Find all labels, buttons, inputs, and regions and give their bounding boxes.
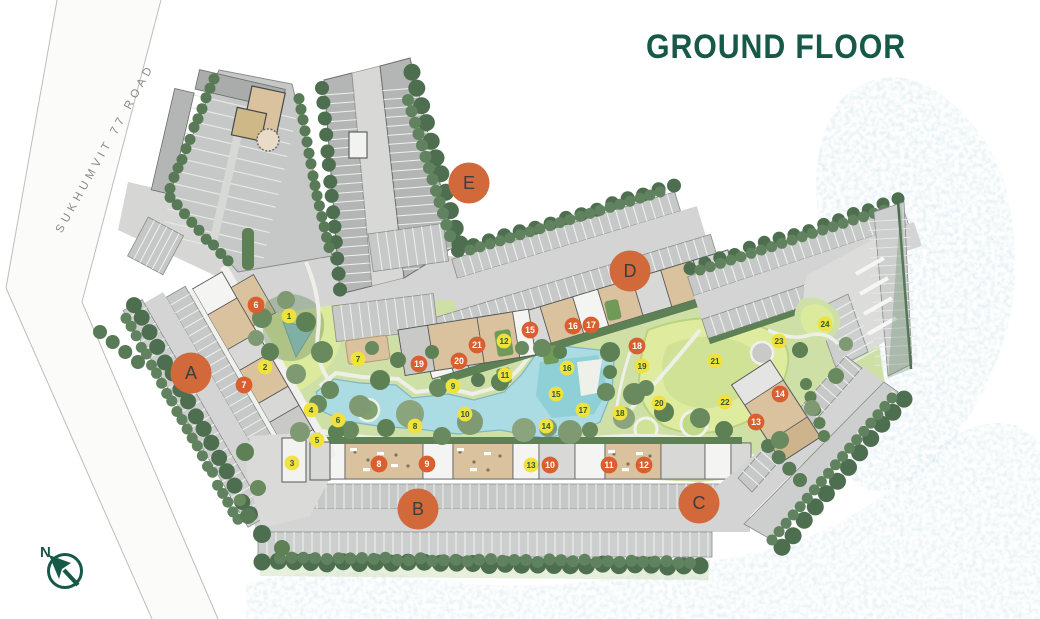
svg-text:11: 11 (501, 371, 510, 380)
svg-text:5: 5 (315, 436, 320, 445)
svg-text:24: 24 (820, 320, 830, 329)
svg-text:2: 2 (263, 363, 268, 372)
svg-text:N: N (40, 544, 51, 561)
svg-text:15: 15 (525, 325, 535, 335)
svg-text:23: 23 (774, 337, 784, 346)
svg-text:12: 12 (639, 460, 649, 470)
svg-text:16: 16 (562, 364, 572, 373)
svg-text:13: 13 (751, 417, 761, 427)
svg-text:D: D (624, 261, 637, 281)
svg-text:B: B (412, 499, 424, 519)
svg-text:4: 4 (309, 406, 314, 415)
svg-text:18: 18 (615, 409, 625, 418)
svg-text:22: 22 (720, 398, 730, 407)
svg-text:19: 19 (414, 359, 424, 369)
svg-text:14: 14 (775, 389, 785, 399)
svg-text:15: 15 (551, 390, 561, 399)
svg-text:A: A (185, 363, 197, 383)
svg-text:7: 7 (242, 380, 247, 390)
svg-text:21: 21 (472, 340, 482, 350)
svg-text:GROUND FLOOR: GROUND FLOOR (646, 28, 906, 66)
svg-text:18: 18 (632, 341, 642, 351)
svg-text:8: 8 (413, 422, 418, 431)
svg-text:E: E (463, 173, 475, 193)
svg-text:10: 10 (545, 460, 555, 470)
svg-text:17: 17 (586, 320, 596, 330)
svg-text:9: 9 (451, 382, 456, 391)
svg-text:20: 20 (654, 399, 664, 408)
svg-text:12: 12 (499, 337, 509, 346)
svg-text:C: C (693, 493, 706, 513)
svg-text:6: 6 (254, 300, 259, 310)
svg-text:3: 3 (290, 459, 295, 468)
svg-text:20: 20 (454, 356, 464, 366)
svg-text:21: 21 (710, 357, 720, 366)
svg-text:19: 19 (637, 362, 647, 371)
svg-text:14: 14 (541, 422, 551, 431)
svg-text:7: 7 (356, 355, 361, 364)
svg-text:17: 17 (578, 406, 588, 415)
svg-text:1: 1 (287, 312, 292, 321)
svg-text:10: 10 (460, 410, 470, 419)
svg-text:9: 9 (425, 459, 430, 469)
svg-text:8: 8 (377, 459, 382, 469)
svg-text:11: 11 (604, 460, 613, 470)
svg-text:16: 16 (568, 321, 578, 331)
svg-text:6: 6 (336, 416, 341, 425)
svg-text:13: 13 (526, 461, 536, 470)
